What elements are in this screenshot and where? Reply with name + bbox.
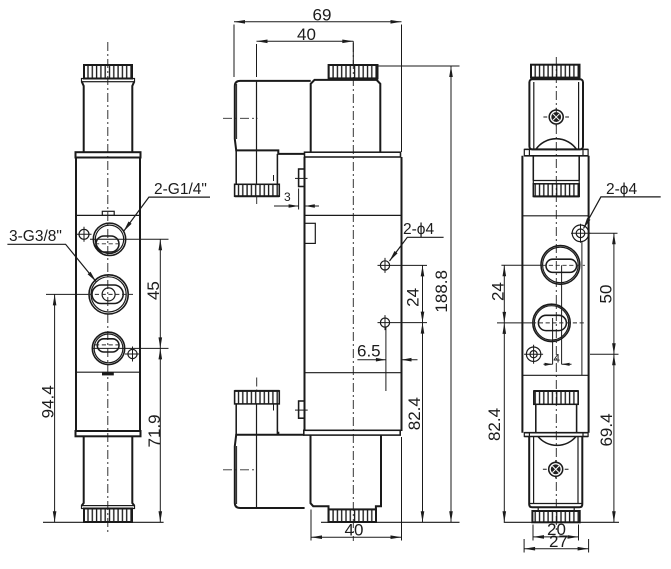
svg-text:2-G1/4": 2-G1/4" — [154, 181, 207, 198]
svg-text:3: 3 — [284, 190, 291, 204]
svg-text:45: 45 — [144, 281, 163, 300]
svg-text:82.4: 82.4 — [405, 397, 424, 430]
svg-text:4: 4 — [553, 351, 560, 365]
svg-text:50: 50 — [596, 285, 615, 304]
svg-text:3-G3/8": 3-G3/8" — [9, 228, 62, 245]
svg-text:69: 69 — [313, 5, 332, 24]
svg-text:94.4: 94.4 — [38, 385, 57, 418]
svg-text:69.4: 69.4 — [597, 413, 616, 446]
svg-text:6.5: 6.5 — [357, 342, 381, 361]
svg-text:24: 24 — [489, 282, 508, 301]
svg-text:27: 27 — [549, 532, 568, 551]
svg-text:71.9: 71.9 — [145, 414, 164, 447]
svg-text:188.8: 188.8 — [432, 270, 451, 313]
svg-text:2-ϕ4: 2-ϕ4 — [606, 181, 637, 198]
svg-text:2-ϕ4: 2-ϕ4 — [403, 221, 434, 238]
svg-text:24: 24 — [404, 288, 423, 307]
svg-text:82.4: 82.4 — [485, 408, 504, 441]
svg-text:40: 40 — [297, 25, 316, 44]
svg-text:40: 40 — [345, 521, 364, 540]
